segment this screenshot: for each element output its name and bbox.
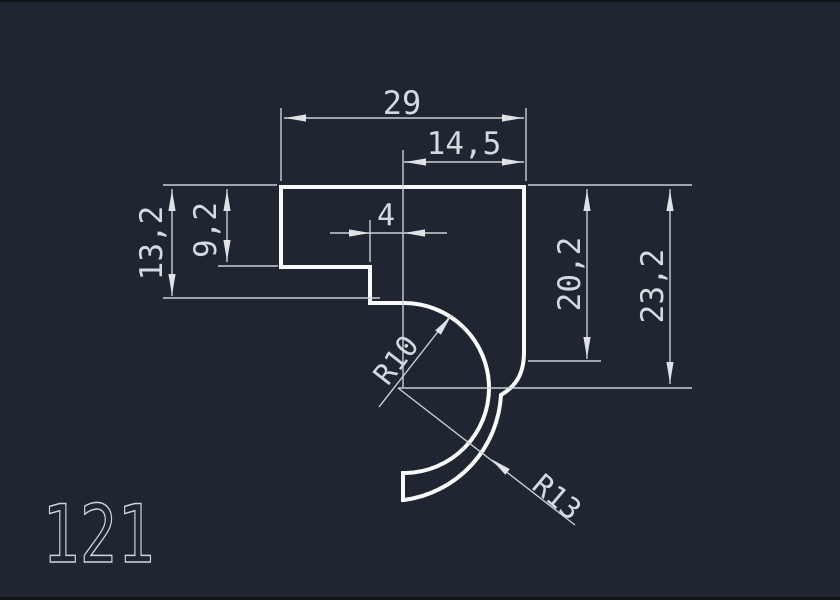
arrowhead [666, 190, 673, 211]
arrowhead [223, 240, 230, 261]
arrowhead [349, 229, 370, 236]
arrowhead [489, 456, 510, 475]
dim-text-r13: R13 [526, 467, 588, 527]
dim-text-r10: R10 [366, 329, 425, 391]
dim-text-9-2: 9,2 [188, 202, 224, 258]
cad-viewport: 29 14,5 4 13,2 9,2 20,2 23,2 R10 R13 121 [0, 0, 840, 600]
arrowhead [405, 158, 426, 165]
dim-text-4: 4 [377, 199, 395, 234]
dim-text-14-5: 14,5 [427, 126, 502, 162]
arrowhead [583, 190, 590, 211]
arrowhead [502, 114, 523, 121]
dim-text-23-2: 23,2 [635, 249, 671, 324]
dim-text-20-2: 20,2 [552, 237, 588, 312]
part-number-label: 121 [42, 487, 155, 581]
arrowhead [223, 190, 230, 211]
viewport-top-border [0, 0, 840, 2]
arrowhead [583, 337, 590, 358]
technical-drawing: 29 14,5 4 13,2 9,2 20,2 23,2 R10 R13 121 [0, 0, 840, 600]
dim-text-29: 29 [383, 84, 422, 122]
dim-text-13-2: 13,2 [134, 206, 170, 281]
arrowhead [502, 158, 523, 165]
arrowhead [404, 229, 425, 236]
arrowhead [666, 362, 673, 383]
arrowhead [285, 114, 306, 121]
